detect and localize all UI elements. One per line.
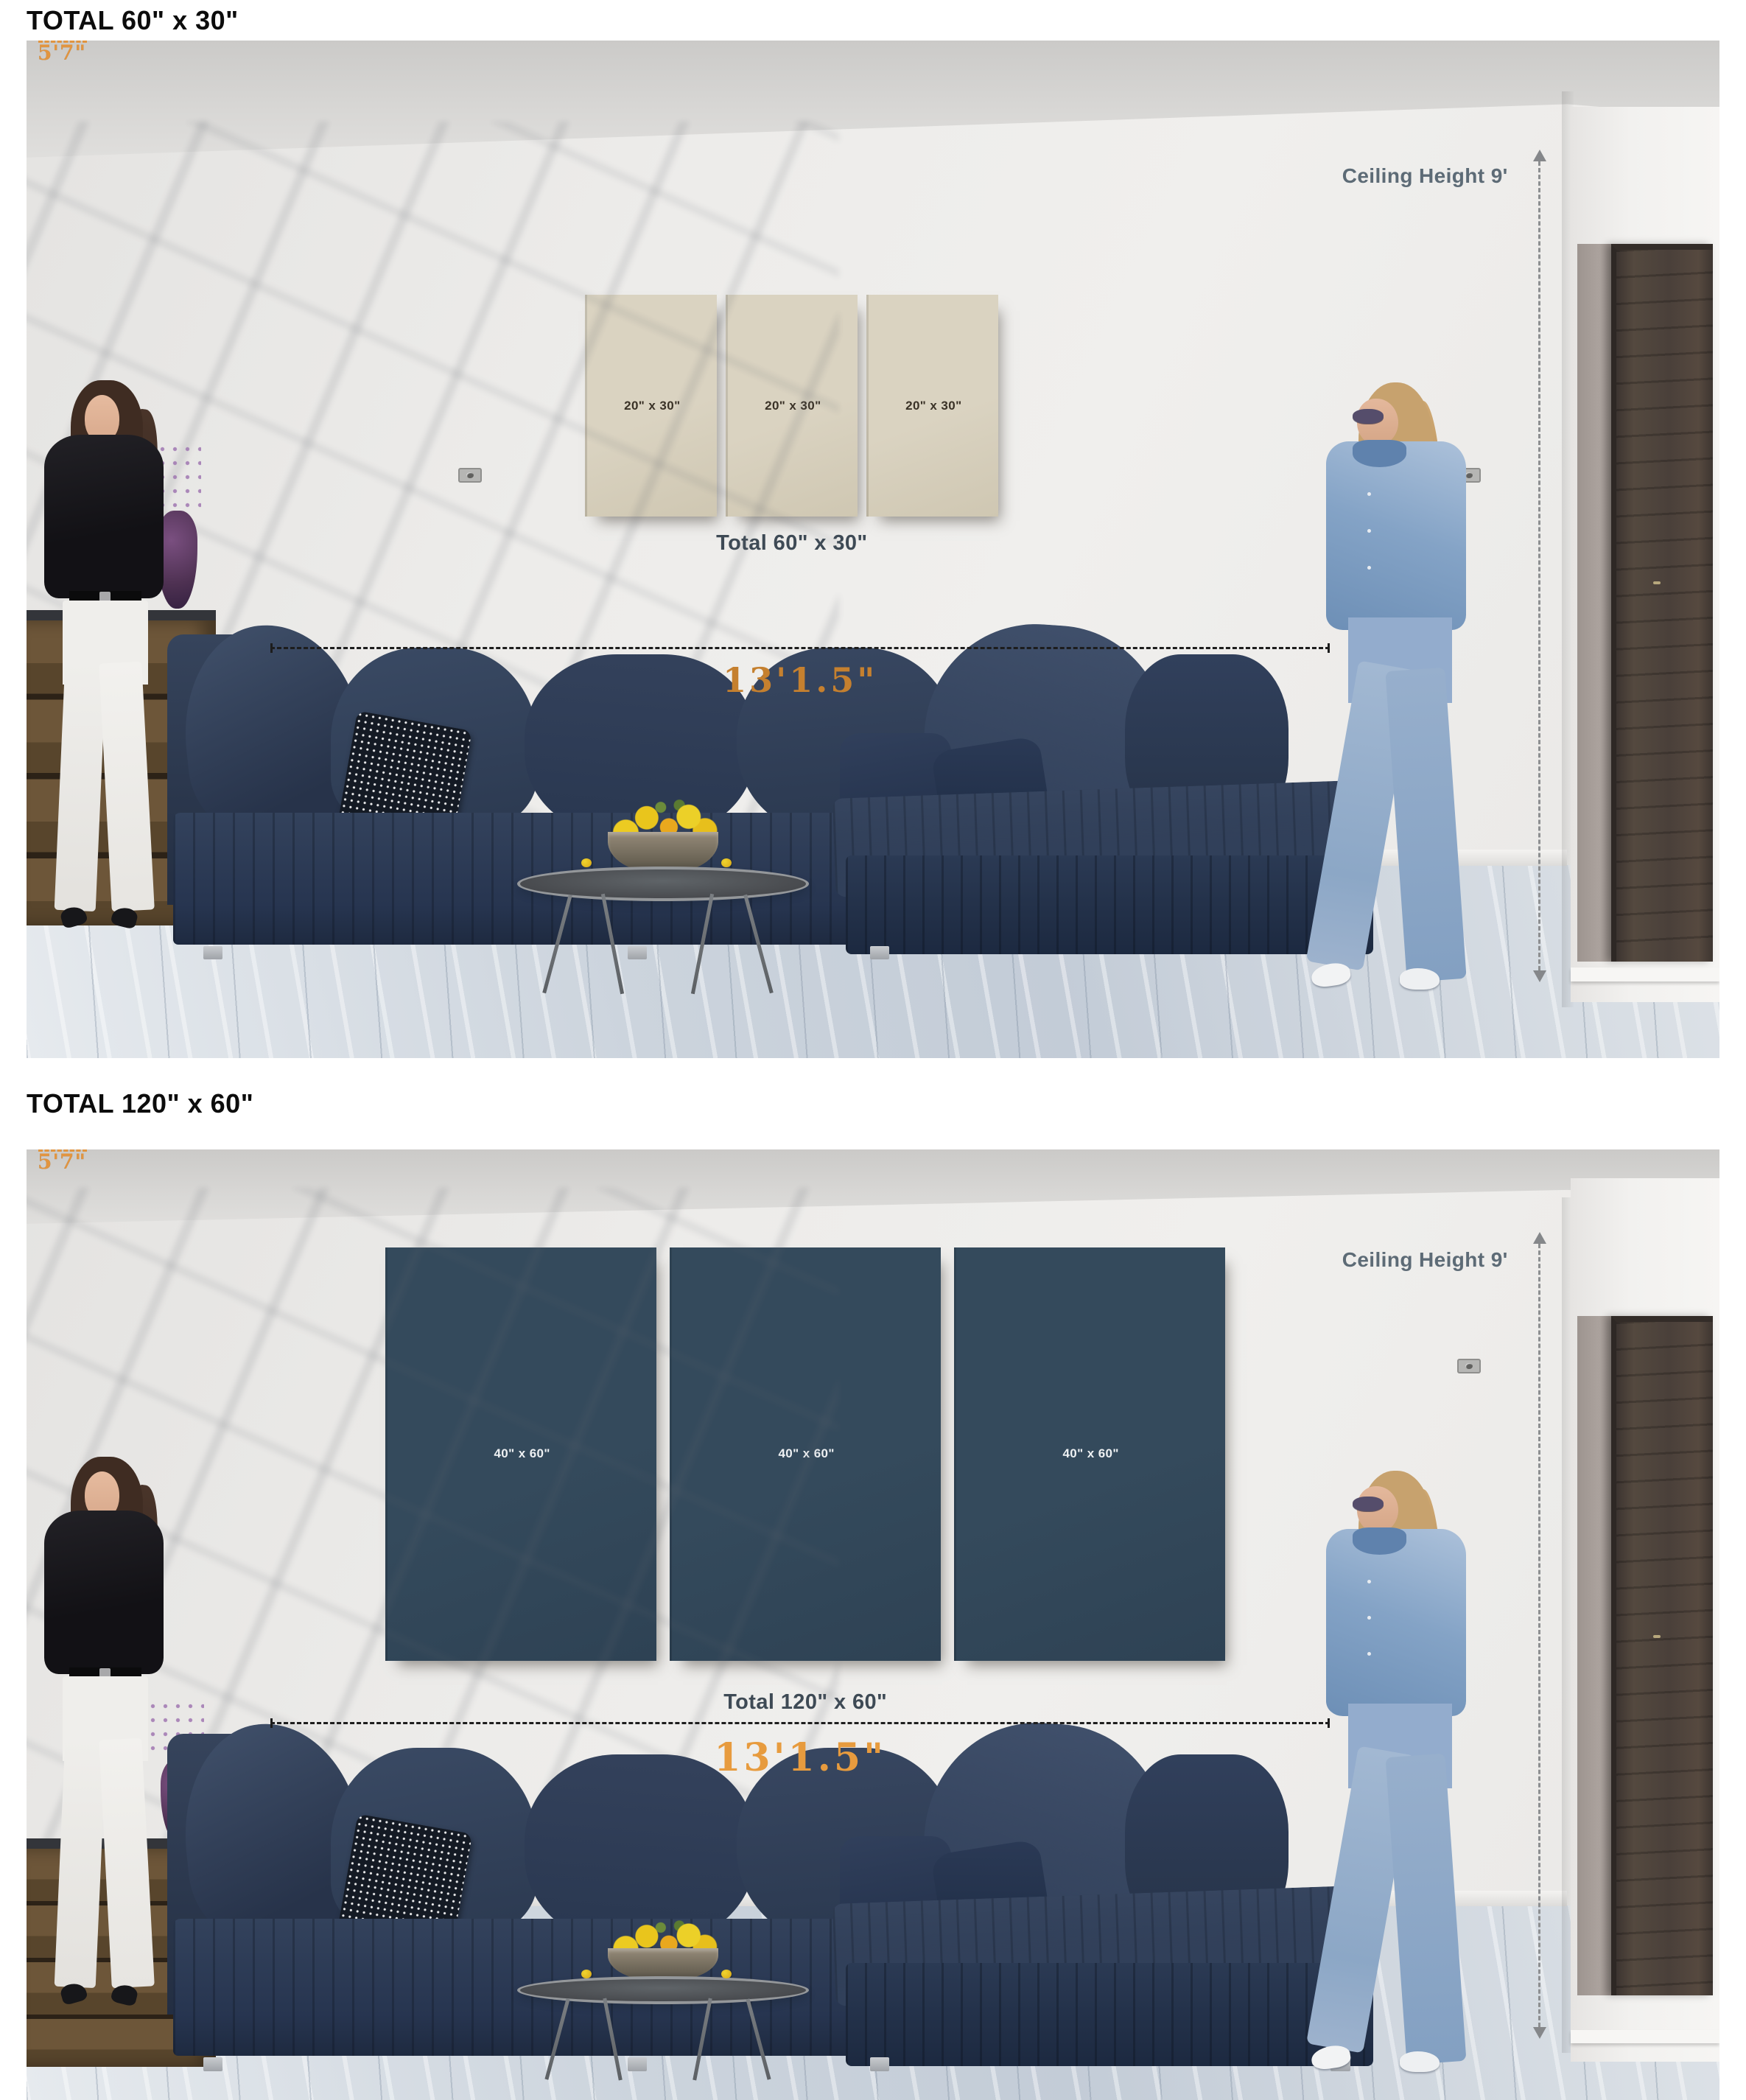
jacket-collar: [1353, 1527, 1406, 1555]
sneaker: [1310, 961, 1352, 988]
trouser-leg: [99, 662, 154, 911]
sofa-chaise-base: [846, 1963, 1373, 2065]
sofa-foot: [870, 2057, 889, 2071]
trouser-leg: [55, 662, 106, 911]
sunglasses-icon: [1353, 1497, 1384, 1511]
jeans-leg: [1385, 1753, 1466, 2065]
door-handle: [1653, 1635, 1661, 1638]
jacket-button: [1367, 1616, 1371, 1620]
door-handle: [1653, 581, 1661, 584]
sneaker: [1310, 2044, 1352, 2071]
canvas-panel-size-label: 20" x 30": [905, 399, 961, 413]
jacket-button: [1367, 529, 1371, 533]
canvas-panel-size-label: 40" x 60": [494, 1446, 550, 1461]
black-blouse: [44, 1511, 164, 1674]
coffee-table-top: [517, 1976, 808, 2004]
table-leg: [603, 1998, 622, 2081]
ceiling-light-icon: [458, 468, 482, 483]
table-leg: [743, 895, 774, 994]
sofa-width-dashed-line: [270, 1722, 1330, 1724]
sneaker: [1400, 968, 1439, 989]
sofa-width-label: 13'1.5": [270, 660, 1330, 700]
person-left: [30, 380, 188, 944]
person-left: [30, 1457, 188, 2021]
jeans-leg: [1385, 668, 1467, 982]
canvas-panel: 40" x 60": [670, 1247, 941, 1661]
table-leg: [601, 894, 624, 995]
sofa-foot: [870, 946, 889, 959]
jacket-collar: [1353, 440, 1406, 467]
total-size-label: Total 60" x 30": [585, 531, 998, 556]
ceiling-light-icon: [1457, 1359, 1481, 1373]
door: [1611, 244, 1713, 962]
section-title-120x60: TOTAL 120" x 60": [27, 1058, 1746, 1149]
trouser-leg: [55, 1738, 106, 1988]
lemon: [721, 1970, 732, 1978]
lemon: [721, 858, 732, 867]
door-recess: [1577, 244, 1615, 962]
canvas-panel: 40" x 60": [954, 1247, 1225, 1661]
height-marker-right-underline: [38, 41, 87, 43]
door-recess: [1577, 1316, 1615, 1995]
canvas-panel: 20" x 30": [726, 295, 858, 517]
canvas-panel-size-label: 20" x 30": [765, 399, 821, 413]
coffee-table-top: [517, 867, 808, 901]
jacket-button: [1367, 566, 1371, 570]
sneaker: [1400, 2051, 1439, 2072]
lemon: [581, 1970, 592, 1978]
canvas-panel: 20" x 30": [585, 295, 717, 517]
sofa-chaise-base: [846, 855, 1373, 954]
ceiling-height-dashed-line: [1538, 1237, 1540, 2034]
ceiling-height-label: Ceiling Height 9': [1178, 164, 1508, 188]
right-wall-baseboard: [1571, 2030, 1719, 2043]
total-size-label: Total 120" x 60": [385, 1690, 1225, 1715]
canvas-panel-size-label: 40" x 60": [778, 1446, 834, 1461]
jacket-button: [1367, 1652, 1371, 1656]
height-marker-right-underline: [38, 1149, 87, 1152]
canvas-panel: 20" x 30": [866, 295, 998, 517]
ceiling-height-label: Ceiling Height 9': [1178, 1248, 1508, 1272]
sofa-foot: [203, 2057, 222, 2071]
denim-jacket: [1326, 441, 1467, 631]
right-wall-baseboard: [1571, 967, 1719, 981]
jacket-button: [1367, 492, 1371, 496]
jacket-button: [1367, 1580, 1371, 1583]
table-leg: [544, 1999, 569, 2080]
canvas-group: 20" x 30" 20" x 30" 20" x 30" Total 60" …: [585, 295, 998, 517]
room-preview-120x60: 40" x 60" 40" x 60" 40" x 60" Total 120"…: [27, 1149, 1719, 2100]
person-right: [1303, 1471, 1510, 2075]
height-marker-right-label: 5'7": [27, 1149, 97, 1174]
canvas-panel: 40" x 60": [385, 1247, 656, 1661]
denim-jacket: [1326, 1529, 1467, 1716]
sofa-foot: [203, 946, 222, 959]
table-leg: [542, 895, 572, 994]
table-leg: [693, 1998, 712, 2081]
sofa-width-dashed-line: [270, 647, 1330, 649]
room-preview-60x30: 20" x 30" 20" x 30" 20" x 30" Total 60" …: [27, 41, 1719, 1058]
sunglasses-icon: [1353, 409, 1384, 424]
height-marker-right-label: 5'7": [27, 41, 97, 65]
ceiling-height-dashed-line: [1538, 155, 1540, 977]
person-right: [1303, 382, 1510, 993]
coffee-table: [517, 791, 808, 995]
table-leg: [691, 894, 714, 995]
canvas-panel-size-label: 40" x 60": [1062, 1446, 1118, 1461]
canvas-group: 40" x 60" 40" x 60" 40" x 60" Total 120"…: [385, 1247, 1225, 1661]
trouser-leg: [99, 1738, 154, 1989]
section-title-60x30: TOTAL 60" x 30": [27, 0, 1746, 41]
table-leg: [746, 1999, 771, 2080]
door: [1611, 1316, 1713, 1995]
canvas-panel-size-label: 20" x 30": [624, 399, 680, 413]
sofa-width-label: 13'1.5": [270, 1735, 1330, 1780]
coffee-table: [517, 1914, 808, 2081]
lemon: [581, 858, 592, 867]
black-blouse: [44, 435, 164, 598]
